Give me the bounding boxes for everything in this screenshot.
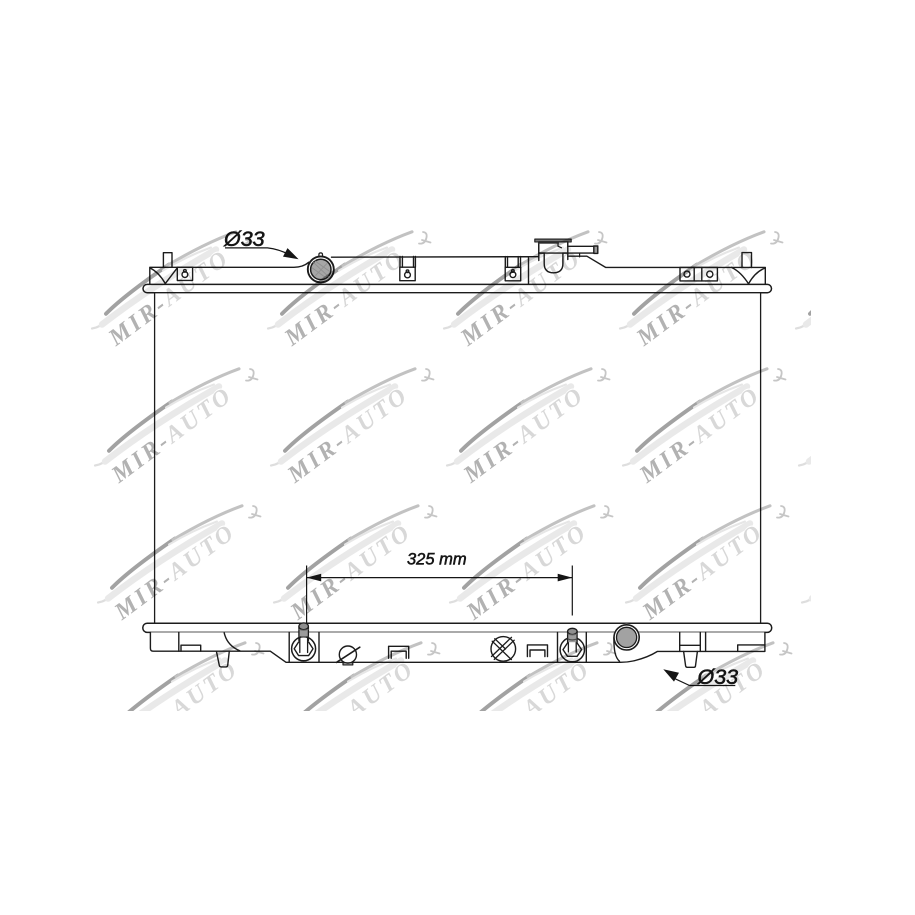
svg-text:325 mm: 325 mm — [407, 551, 467, 569]
svg-text:Ø33: Ø33 — [223, 227, 265, 251]
